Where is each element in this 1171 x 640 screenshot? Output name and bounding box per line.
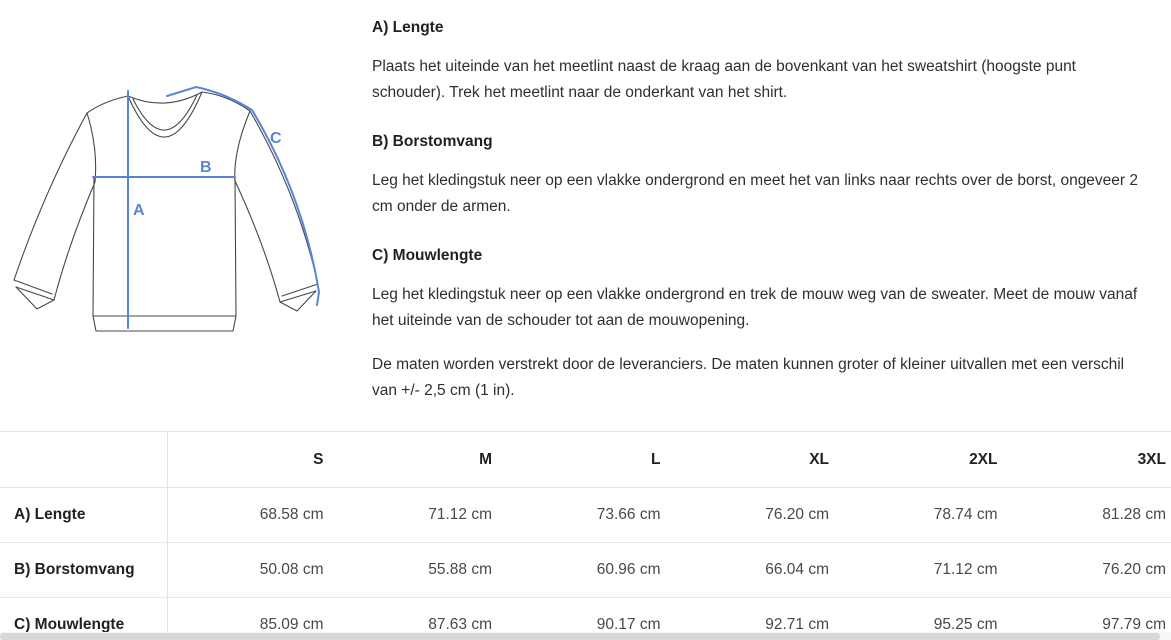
horizontal-scrollbar[interactable]	[0, 632, 1171, 640]
sweatshirt-diagram-svg: A B C	[0, 55, 345, 355]
table-cell: 73.66 cm	[504, 488, 673, 543]
table-header-m: M	[336, 432, 505, 488]
table-header-3xl: 3XL	[1010, 432, 1171, 488]
measurement-instructions: A) Lengte Plaats het uiteinde van het me…	[372, 10, 1147, 404]
section-body-borstomvang: Leg het kledingstuk neer op een vlakke o…	[372, 168, 1147, 220]
measure-label-b: B	[200, 159, 212, 176]
measure-line-c	[167, 87, 319, 305]
table-row-lengte: A) Lengte 68.58 cm 71.12 cm 73.66 cm 76.…	[0, 488, 1171, 543]
measure-label-c: C	[270, 130, 282, 147]
table-corner-cell	[0, 432, 167, 488]
size-table-container: S M L XL 2XL 3XL A) Lengte 68.58 cm 71.1…	[0, 431, 1171, 640]
table-cell: 71.12 cm	[336, 488, 505, 543]
table-cell: 60.96 cm	[504, 543, 673, 598]
section-body-lengte: Plaats het uiteinde van het meetlint naa…	[372, 54, 1147, 106]
measure-label-a: A	[133, 202, 145, 219]
table-cell: 55.88 cm	[336, 543, 505, 598]
size-table: S M L XL 2XL 3XL A) Lengte 68.58 cm 71.1…	[0, 431, 1171, 640]
table-cell: 50.08 cm	[167, 543, 336, 598]
table-header-l: L	[504, 432, 673, 488]
table-cell: 76.20 cm	[1010, 543, 1171, 598]
table-cell: 68.58 cm	[167, 488, 336, 543]
measurement-labels: A B C	[133, 130, 282, 219]
horizontal-scrollbar-thumb[interactable]	[0, 633, 1160, 640]
section-heading-borstomvang: B) Borstomvang	[372, 130, 1147, 154]
table-cell: 76.20 cm	[673, 488, 842, 543]
table-cell: 78.74 cm	[841, 488, 1010, 543]
table-header-s: S	[167, 432, 336, 488]
sweatshirt-outline	[14, 92, 318, 331]
table-header-2xl: 2XL	[841, 432, 1010, 488]
section-heading-mouwlengte: C) Mouwlengte	[372, 244, 1147, 268]
table-cell: 71.12 cm	[841, 543, 1010, 598]
table-cell: 81.28 cm	[1010, 488, 1171, 543]
size-table-header-row: S M L XL 2XL 3XL	[0, 432, 1171, 488]
section-body-mouwlengte: Leg het kledingstuk neer op een vlakke o…	[372, 282, 1147, 334]
row-label-lengte: A) Lengte	[0, 488, 167, 543]
section-heading-lengte: A) Lengte	[372, 16, 1147, 40]
size-guide-page: A B C A) Lengte Plaats het uiteinde van …	[0, 0, 1171, 640]
table-cell: 66.04 cm	[673, 543, 842, 598]
measurement-lines	[93, 87, 319, 328]
table-header-xl: XL	[673, 432, 842, 488]
disclaimer-text: De maten worden verstrekt door de levera…	[372, 352, 1147, 404]
row-label-borstomvang: B) Borstomvang	[0, 543, 167, 598]
size-diagram: A B C	[0, 55, 345, 355]
table-row-borstomvang: B) Borstomvang 50.08 cm 55.88 cm 60.96 c…	[0, 543, 1171, 598]
